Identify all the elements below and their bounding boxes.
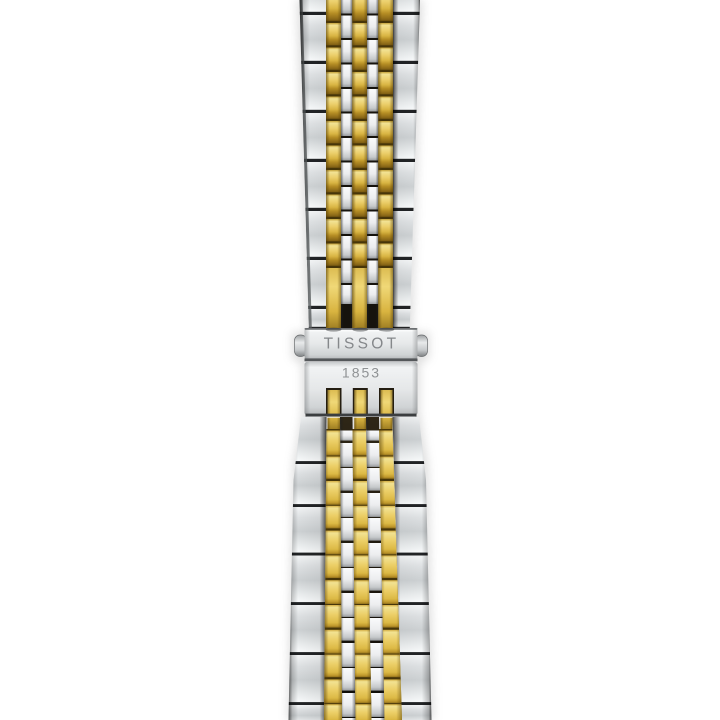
svg-text:1853: 1853 <box>342 365 381 381</box>
svg-text:TISSOT: TISSOT <box>324 336 400 353</box>
